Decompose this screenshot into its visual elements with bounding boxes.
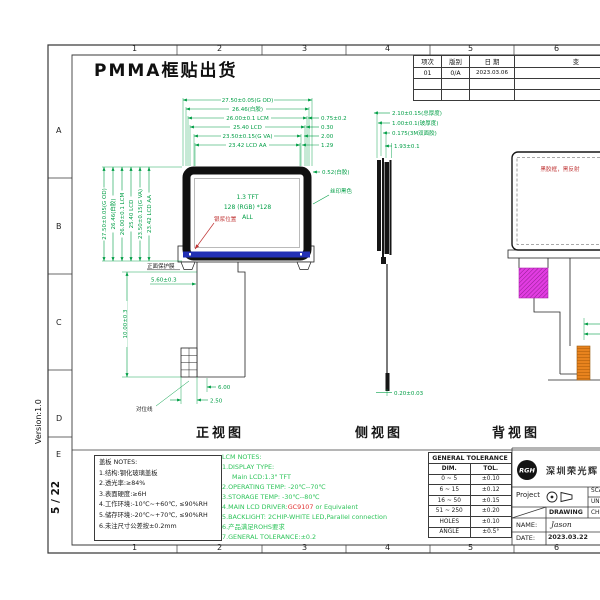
side-view-label: 侧视图 xyxy=(355,425,403,441)
tolerance-dim-header: DIM. xyxy=(429,464,471,475)
fpc-stiffener xyxy=(519,268,548,298)
lcm-note-line: Main LCD:1.3" TFT xyxy=(222,472,432,482)
dim-right-4: 1.29 xyxy=(321,143,334,149)
table-row: ANGLE±0.5° xyxy=(429,527,512,538)
dim-tail-offset: 6.00 xyxy=(218,385,231,391)
fpc-bond-bar xyxy=(183,252,310,258)
side-dim-total: 2.10±0.15(总厚度) xyxy=(392,109,442,117)
dim-right-note: 0.52(白胶) xyxy=(322,168,350,176)
grid-col-label: 4 xyxy=(385,44,390,53)
back-note-label: 黑胶框，黑反射 xyxy=(540,165,580,173)
back-view-label: 背视图 xyxy=(492,425,540,441)
table-row: 0 ~ 5±0.10 xyxy=(429,474,512,485)
rev-col-change: 变 xyxy=(515,56,600,68)
cover-note-line: 6.未注尺寸公差按±0.2mm xyxy=(99,522,221,533)
dim-tail-finger: 2.50 xyxy=(210,399,223,405)
tolerance-table: GENERAL TOLERANCE DIM. TOL. 0 ~ 5±0.10 6… xyxy=(428,452,512,538)
grid-row-label: A xyxy=(56,126,61,135)
tol-val: ±0.15 xyxy=(470,495,512,506)
cover-note-line: 1.结构:钢化玻璃盖板 xyxy=(99,469,221,480)
grid-col-label: 2 xyxy=(217,44,222,53)
dim-left-lcm: 26.00±0.1 LCM xyxy=(120,192,126,235)
dim-g-od: 27.50±0.05(G OD) xyxy=(222,98,273,104)
tol-val: ±0.5° xyxy=(470,527,512,538)
cover-note-line: 2.透光率:≥84% xyxy=(99,479,221,490)
page-title: PMMA框贴出货 xyxy=(94,56,237,81)
rev-col-version: 版别 xyxy=(442,56,470,68)
grid-col-label: 1 xyxy=(132,543,137,552)
tol-val: ±0.10 xyxy=(470,516,512,527)
protect-film-label: 正面保护膜 xyxy=(147,262,175,270)
rev-change xyxy=(515,68,600,79)
dim-tail-width: 5.60±0.3 xyxy=(151,278,177,284)
rev-item: 01 xyxy=(414,68,442,79)
tol-dim: ANGLE xyxy=(429,527,471,538)
dim-left-lcd-aa: 23.42 LCD AA xyxy=(147,195,153,233)
side-dim-sub: 1.93±0.1 xyxy=(394,144,420,150)
back-view-linework: 黑胶框，黑反射 xyxy=(508,152,600,380)
logo-text: RGH xyxy=(519,467,535,475)
grid-col-label: 6 xyxy=(554,44,559,53)
tol-dim: 16 ~ 50 xyxy=(429,495,471,506)
lcm-note-line: 4.MAIN LCD DRIVER:GC9107 or Equivalent xyxy=(222,502,432,512)
tolerance-title: GENERAL TOLERANCE xyxy=(429,453,512,464)
align-line-label: 对位线 xyxy=(136,405,153,413)
dim-left-white-glue: 26.46(白胶) xyxy=(109,198,117,229)
project-label: Project xyxy=(516,491,540,499)
fpc-connector xyxy=(577,346,590,380)
tol-dim: 51 ~ 250 xyxy=(429,506,471,517)
tol-val: ±0.12 xyxy=(470,485,512,496)
front-view-label: 正视图 xyxy=(196,425,244,441)
grid-row-label: E xyxy=(56,450,61,459)
lcm-note-line: 2.OPERATING TEMP: -20℃--70℃ xyxy=(222,482,432,492)
grid-col-label: 1 xyxy=(132,44,137,53)
version-text: Version:1.0 xyxy=(34,399,43,444)
unit-label: UN xyxy=(591,499,600,505)
dim-g-va: 23.50±0.15(G VA) xyxy=(222,134,272,140)
front-view-linework xyxy=(178,171,314,378)
grid-col-label: 5 xyxy=(468,543,473,552)
tol-val: ±0.10 xyxy=(470,474,512,485)
cover-note-line: 4.工作环境:-10℃~+60℃, ≤90%RH xyxy=(99,500,221,511)
side-view-dimensions: 2.10±0.15(总厚度) 1.00±0.1(玻厚度) 0.175(3M双面胶… xyxy=(374,109,442,397)
grid-col-label: 2 xyxy=(217,543,222,552)
table-row: 6 ~ 15±0.12 xyxy=(429,485,512,496)
check-label: CHE xyxy=(591,510,600,516)
screen-text-1: 1.3 TFT xyxy=(236,194,258,201)
dim-right-3: 2.00 xyxy=(321,134,334,140)
table-row: HOLES±0.10 xyxy=(429,516,512,527)
scale-label: SCA xyxy=(591,488,600,494)
tolerance-tol-header: TOL. xyxy=(470,464,512,475)
dim-right-2: 0.30 xyxy=(321,125,334,131)
side-dim-tape: 0.175(3M双面胶) xyxy=(392,129,437,137)
table-row: 51 ~ 250±0.20 xyxy=(429,506,512,517)
lcm-note-line: 6.产品满足ROHS要求 xyxy=(222,522,432,532)
cover-note-line: 5.储存环境:-20℃~+70℃, ≤90%RH xyxy=(99,511,221,522)
dim-left-lcd: 25.40 LCD xyxy=(129,200,135,229)
name-label: NAME: xyxy=(516,521,537,529)
screen-text-2: 128 (RGB) *128 xyxy=(224,204,272,211)
table-row: 01 0/A 2023.03.06 xyxy=(414,68,600,79)
dim-left-g-va: 23.50±0.15(G VA) xyxy=(138,189,144,239)
grid-col-label: 3 xyxy=(302,543,307,552)
lcm-driver-ic: GC9107 xyxy=(288,503,314,511)
tol-dim: HOLES xyxy=(429,516,471,527)
silkscreen-label: 丝印黑色 xyxy=(330,187,353,195)
table-row xyxy=(414,90,600,101)
lcm-note-line: 5.BACKLIGHT: 2CHIP-WHITE LED,Parallel co… xyxy=(222,512,432,522)
rev-version: 0/A xyxy=(442,68,470,79)
grid-row-label: D xyxy=(56,414,62,423)
side-view-linework xyxy=(377,158,392,391)
grid-col-label: 6 xyxy=(554,543,559,552)
lcm-notes-title: LCM NOTES: xyxy=(222,452,432,462)
grid-row-label: C xyxy=(56,318,62,327)
lcm-note-line: 1.DISPLAY TYPE: xyxy=(222,462,432,472)
grid-col-label: 4 xyxy=(385,543,390,552)
grid-col-label: 5 xyxy=(468,44,473,53)
lcm-notes: LCM NOTES: 1.DISPLAY TYPE: Main LCD:1.3"… xyxy=(222,452,432,542)
table-row: 16 ~ 50±0.15 xyxy=(429,495,512,506)
dim-lcm: 26.00±0.1 LCM xyxy=(226,116,269,122)
dim-lcd-aa: 23.42 LCD AA xyxy=(228,143,266,149)
revision-table: 项次 版别 日 期 变 01 0/A 2023.03.06 xyxy=(413,55,600,101)
lcm-driver-suffix: or Equivalent xyxy=(313,503,357,511)
rev-col-date: 日 期 xyxy=(470,56,515,68)
cover-notes-title: 盖板 NOTES: xyxy=(99,458,221,469)
lcm-driver-prefix: 4.MAIN LCD DRIVER: xyxy=(222,503,288,511)
tol-dim: 0 ~ 5 xyxy=(429,474,471,485)
dim-white-glue: 26.46(白胶) xyxy=(232,105,263,113)
cover-note-line: 3.表面硬度:≥6H xyxy=(99,490,221,501)
company-name: 深圳荣光辉 xyxy=(546,464,599,477)
side-dim-fpc: 0.20±0.03 xyxy=(394,391,424,397)
side-dim-glass: 1.00±0.1(玻厚度) xyxy=(392,119,438,127)
dim-lcd: 25.40 LCD xyxy=(233,125,262,131)
table-row xyxy=(414,79,600,90)
screen-text-3: ALL xyxy=(242,214,253,221)
rev-date: 2023.03.06 xyxy=(470,68,515,79)
lcm-note-line: 3.STORAGE TEMP: -30℃--80℃ xyxy=(222,492,432,502)
dim-left-g-od: 27.50±0.05(G OD) xyxy=(102,188,108,239)
dim-tail-length: 10.00±0.3 xyxy=(123,309,129,339)
dim-right-1: 0.75±0.2 xyxy=(321,116,347,122)
cover-notes: 盖板 NOTES: 1.结构:钢化玻璃盖板 2.透光率:≥84% 3.表面硬度:… xyxy=(94,455,222,541)
grid-col-label: 3 xyxy=(302,44,307,53)
drawing-label: DRAWING xyxy=(549,509,583,516)
drawer-name: Jason xyxy=(551,520,572,529)
silver-paste-label: 银浆位置 xyxy=(214,215,237,223)
drawing-date: 2023.03.22 xyxy=(548,534,588,541)
date-label: DATE: xyxy=(516,534,535,542)
lcm-note-line: 7.GENERAL TOLERANCE:±0.2 xyxy=(222,532,432,542)
drawing-sheet: 27.50±0.05(G OD) 26.46(白胶) 26.00±0.1 LCM… xyxy=(0,0,600,600)
page-number: 5 / 22 xyxy=(50,481,62,514)
tol-dim: 6 ~ 15 xyxy=(429,485,471,496)
tol-val: ±0.20 xyxy=(470,506,512,517)
rev-col-item: 项次 xyxy=(414,56,442,68)
grid-row-label: B xyxy=(56,222,62,231)
